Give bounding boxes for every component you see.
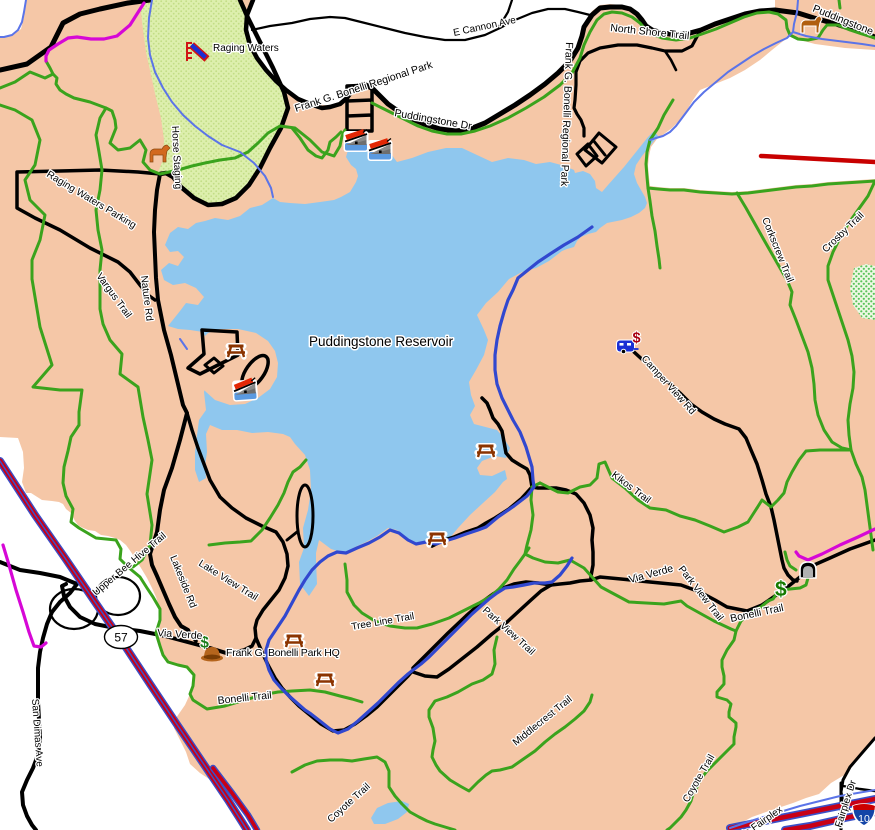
svg-text:Puddingstone Reservoir: Puddingstone Reservoir: [309, 334, 454, 349]
svg-text:Raging Waters: Raging Waters: [213, 43, 279, 54]
svg-text:Frank G. Bonelli Park HQ: Frank G. Bonelli Park HQ: [226, 647, 340, 659]
svg-text:10: 10: [858, 813, 870, 825]
svg-text:$: $: [633, 331, 641, 347]
svg-text:57: 57: [114, 631, 128, 645]
svg-text:$: $: [775, 578, 787, 601]
